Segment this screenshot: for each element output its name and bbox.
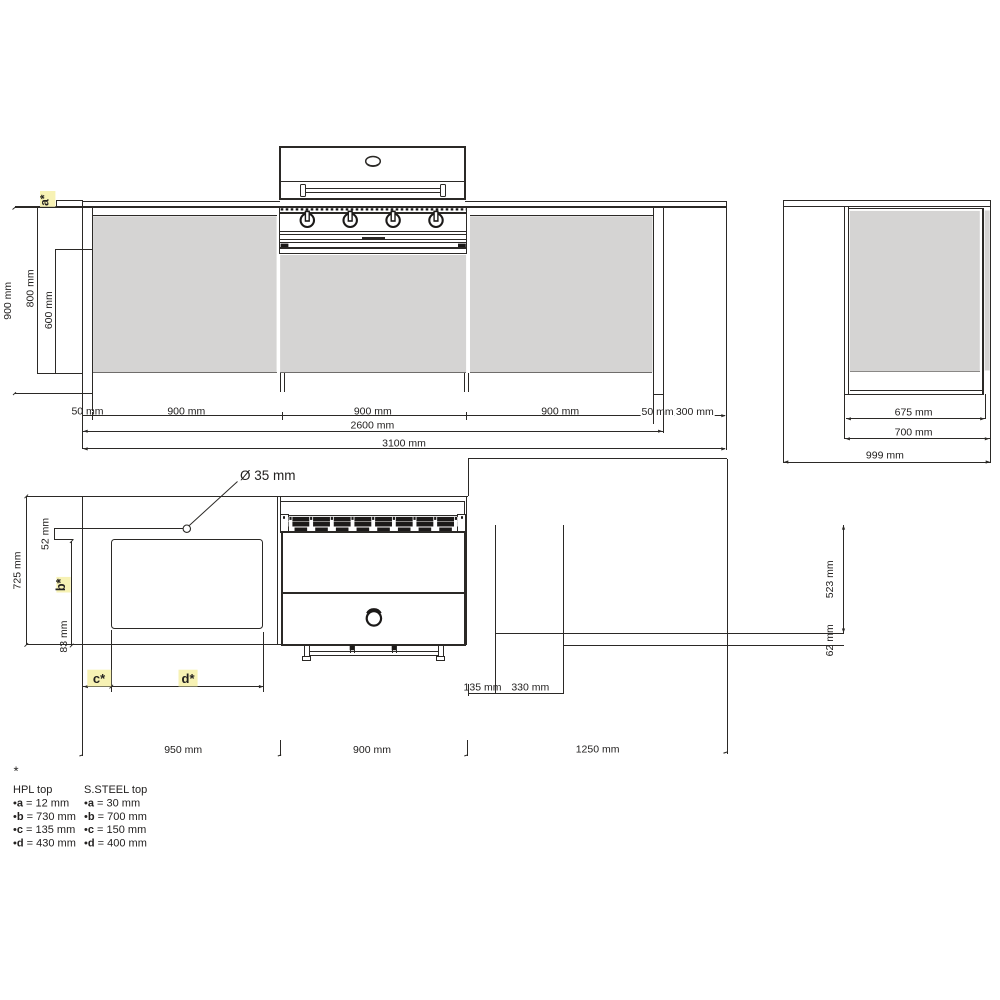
svg-text:HPL top: HPL top: [13, 784, 52, 796]
svg-text:b*: b*: [54, 579, 68, 592]
svg-text:3100 mm: 3100 mm: [382, 437, 426, 449]
svg-text:950 mm: 950 mm: [164, 744, 202, 756]
svg-text:50 mm: 50 mm: [642, 406, 674, 418]
svg-text:999 mm: 999 mm: [866, 450, 904, 462]
svg-text:•a = 30 mm: •a = 30 mm: [84, 798, 140, 810]
svg-text:83 mm: 83 mm: [58, 620, 70, 652]
svg-text:Ø 35 mm: Ø 35 mm: [240, 468, 296, 483]
svg-text:900 mm: 900 mm: [354, 406, 392, 418]
svg-text:•c = 150 mm: •c = 150 mm: [84, 824, 146, 836]
svg-text:a*: a*: [37, 194, 51, 206]
svg-text:300 mm: 300 mm: [676, 406, 714, 418]
svg-text:S.STEEL top: S.STEEL top: [84, 784, 147, 796]
svg-text:c*: c*: [93, 671, 106, 686]
svg-text:523 mm: 523 mm: [824, 560, 836, 598]
svg-text:900 mm: 900 mm: [353, 744, 391, 756]
svg-text:700 mm: 700 mm: [895, 427, 933, 439]
svg-text:800 mm: 800 mm: [24, 269, 36, 307]
svg-text:2600 mm: 2600 mm: [351, 419, 395, 431]
svg-text:900 mm: 900 mm: [541, 406, 579, 418]
svg-text:•b = 700 mm: •b = 700 mm: [84, 811, 147, 823]
svg-text:330 mm: 330 mm: [511, 682, 549, 694]
svg-text:135 mm: 135 mm: [464, 682, 502, 694]
svg-text:*: *: [14, 764, 19, 779]
svg-text:675 mm: 675 mm: [895, 407, 933, 419]
svg-text:900 mm: 900 mm: [2, 282, 14, 320]
svg-text:62 mm: 62 mm: [824, 624, 836, 656]
svg-text:725 mm: 725 mm: [12, 551, 24, 589]
svg-text:1250 mm: 1250 mm: [576, 744, 620, 756]
svg-text:900 mm: 900 mm: [167, 406, 205, 418]
svg-text:50 mm: 50 mm: [71, 406, 103, 418]
svg-text:52 mm: 52 mm: [39, 518, 51, 550]
svg-text:•d = 400 mm: •d = 400 mm: [84, 837, 147, 849]
svg-text:•a = 12 mm: •a = 12 mm: [13, 798, 69, 810]
svg-text:600 mm: 600 mm: [43, 291, 55, 329]
svg-text:•d = 430 mm: •d = 430 mm: [13, 837, 76, 849]
svg-text:•b = 730 mm: •b = 730 mm: [13, 811, 76, 823]
svg-text:•c = 135 mm: •c = 135 mm: [13, 824, 75, 836]
svg-text:d*: d*: [182, 671, 196, 686]
